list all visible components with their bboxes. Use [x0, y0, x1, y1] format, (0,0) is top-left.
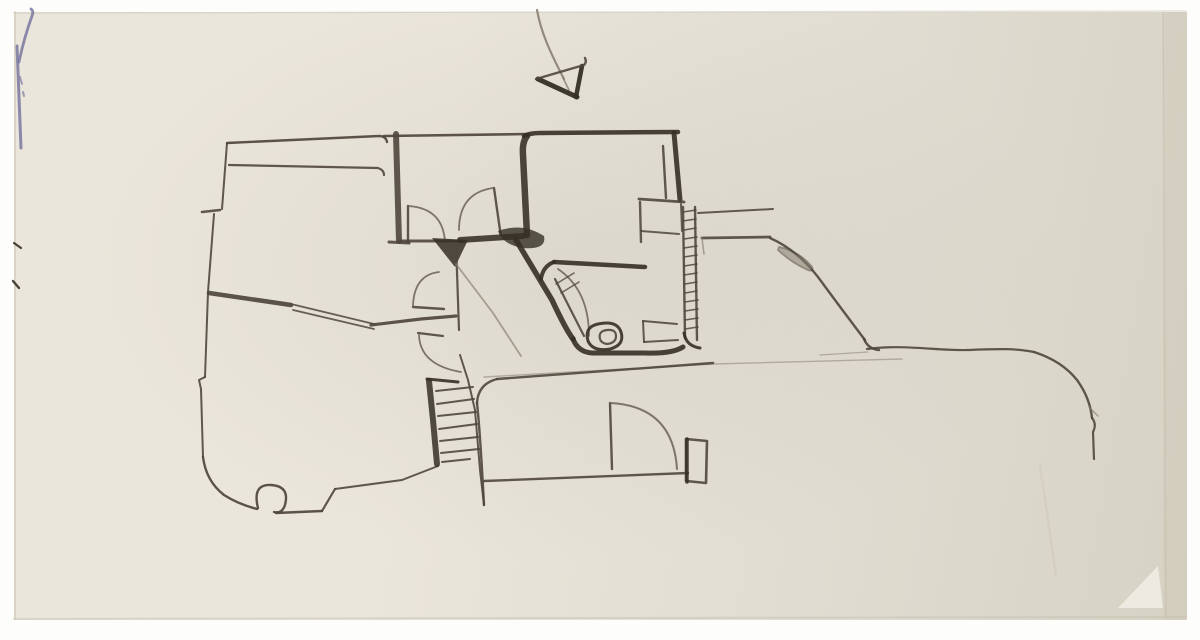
left-room-top-wall-outer: [227, 136, 387, 143]
sink-left: [643, 321, 644, 342]
door-jamb-rect: [686, 439, 707, 483]
paper-crease: [1040, 465, 1056, 575]
door-4-leaf: [418, 333, 443, 336]
kitchen-inner-right: [663, 146, 666, 198]
alcove-left-wall: [640, 202, 641, 242]
left-room-top-wall-inner: [229, 165, 384, 175]
north-arrow-right-edge: [576, 66, 582, 97]
door-4-swing-arc: [419, 335, 461, 372]
lower-room-top-wall: [497, 363, 713, 379]
photo-of-sketch: [0, 0, 1200, 640]
door-5-swing-arc: [610, 403, 677, 469]
kitchen-right-wall: [674, 133, 680, 200]
blue-pen-mark-branch: [19, 9, 33, 62]
left-room-column-loop: [257, 485, 286, 512]
sink-bottom: [644, 340, 678, 342]
north-arrow-left-edge: [538, 79, 577, 97]
right-wing-door-pod: [778, 247, 813, 271]
left-room-left-wall-jog: [199, 377, 205, 457]
hatched-wall-left-line: [683, 207, 685, 338]
left-room-bottom-step: [322, 489, 335, 511]
terrace-edge-end: [1092, 418, 1095, 459]
door-3-swing-arc: [413, 272, 439, 306]
door-3-leaf: [413, 307, 444, 309]
upper-room-left-wall: [396, 134, 399, 241]
door-2-swing-arc: [459, 188, 493, 230]
paper-top-edge: [14, 11, 1186, 13]
left-room-bottom-curve: [203, 457, 257, 509]
left-room-left-wall-upper: [222, 143, 227, 209]
paper-corner-curl: [1118, 566, 1163, 608]
right-wing-mid-line: [702, 237, 770, 238]
sketch-svg: [0, 0, 1200, 640]
left-room-bottom-wall-2: [335, 466, 438, 489]
alcove-bottom: [641, 231, 679, 234]
left-room-interior-double-b: [293, 310, 374, 329]
sink-top: [643, 321, 677, 324]
terrace-edge-line: [867, 347, 1034, 352]
lower-room-top-corner: [477, 379, 497, 403]
left-room-interior-double-a: [291, 304, 374, 324]
kitchen-left-wall: [523, 136, 527, 235]
left-room-interior-wall-thick: [209, 293, 291, 305]
pencil-guideline-right: [820, 352, 868, 355]
right-wing-mid-hook: [702, 238, 704, 254]
door-5-leaf: [610, 403, 612, 469]
door-2-leaf: [494, 188, 501, 237]
bathroom-top-wall: [554, 262, 645, 267]
kitchen-top-wall: [524, 132, 678, 136]
bathroom-top-corner: [541, 262, 554, 279]
terrace-edge-curve: [1034, 352, 1092, 418]
left-room-window-tick: [202, 210, 220, 212]
toilet-bowl-inner: [600, 330, 616, 344]
left-room-interior-wall-thick-2: [371, 316, 456, 325]
paper-bottom-edge: [14, 617, 1186, 619]
left-room-bottom-wall: [276, 511, 322, 513]
kitchen-inner-bottom: [639, 199, 684, 202]
blue-pen-mark-dots: [20, 77, 24, 96]
paper-right-band: [1163, 12, 1187, 620]
upper-room-top-wall: [384, 134, 528, 136]
lower-room-bottom-wall: [484, 473, 688, 481]
stair-left-rail: [429, 381, 437, 464]
north-arrow-stem-tail: [563, 78, 569, 90]
corridor-faint-diagonal: [456, 264, 521, 356]
junction-poche-triangle: [432, 238, 468, 267]
bathroom-left-wall-diagonal: [516, 240, 573, 339]
north-arrow-stem: [537, 10, 564, 79]
door-1-swing-arc: [408, 206, 445, 242]
right-wing-top-line: [698, 209, 773, 213]
